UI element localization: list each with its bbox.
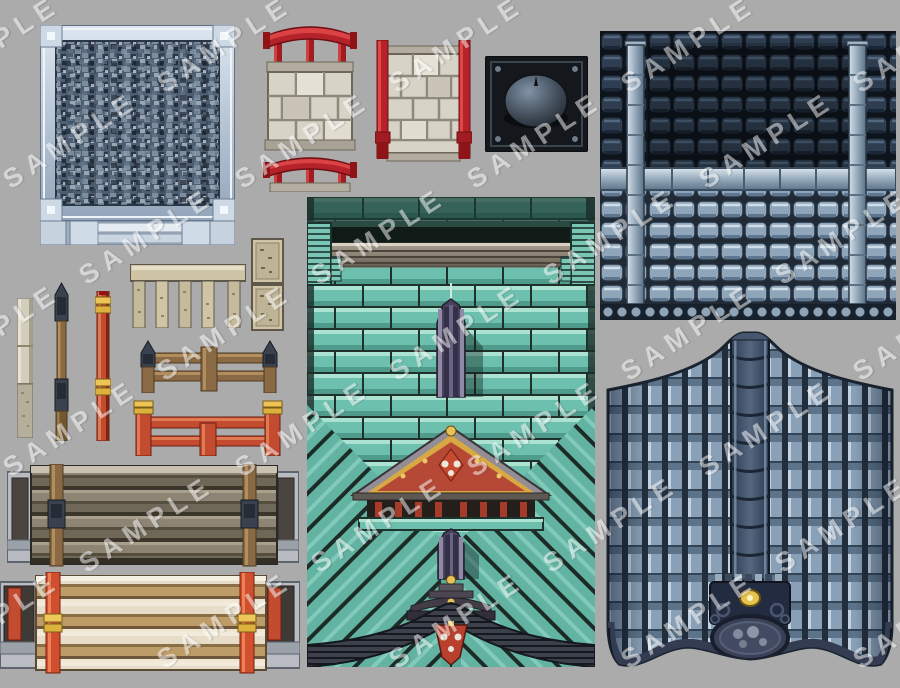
watermark-text: SAMPLE [74, 0, 220, 3]
teal-brick-tower [307, 197, 595, 667]
fence-post-left [141, 341, 155, 393]
curved-roof-slope [605, 330, 895, 680]
red-rail-bottom [263, 158, 357, 192]
bridge-dark-graphic [7, 464, 299, 568]
watermark-text: SAMPLE [538, 0, 684, 3]
bridge-dark [7, 464, 299, 568]
watermark-text: SAMPLE [306, 0, 452, 3]
red-bridge-post-right [238, 572, 256, 673]
abutment-left [7, 472, 33, 562]
watermark-text: SAMPLE [770, 0, 900, 3]
red-fence-post-left [134, 401, 153, 456]
gravel-wall-panel-graphic [40, 25, 235, 245]
stone-post-graphic [17, 298, 33, 438]
abutment-right [262, 582, 300, 668]
red-pole-right [457, 40, 472, 159]
red-fence [133, 399, 283, 456]
bridge-post-left [48, 464, 65, 566]
bridge-light-graphic [0, 572, 300, 674]
stone-pillar-graphic [251, 238, 284, 331]
wood-post [53, 281, 70, 441]
red-rail-top [263, 27, 357, 66]
red-fence-post-right [263, 401, 282, 456]
ridge-pipe-vertical-right [847, 41, 868, 304]
roof-tile-sheet [600, 31, 896, 320]
roof-tile-sheet-graphic [600, 31, 896, 320]
stone-post [17, 298, 33, 438]
bridge-light [0, 572, 300, 674]
center-ridge-column [725, 330, 775, 592]
eave-medallion [712, 616, 788, 660]
red-bridge-post-left [44, 572, 62, 673]
ridge-pipe-vertical-left [625, 41, 646, 304]
wood-post-graphic [53, 281, 70, 441]
red-fence-graphic [133, 399, 283, 456]
metal-dome-plate [485, 56, 588, 152]
torii-rail-wall [262, 14, 358, 192]
fence-post-right [263, 341, 277, 393]
curved-roof-slope-graphic [605, 330, 895, 680]
stone-pillar [251, 238, 284, 331]
metal-dome-plate-graphic [485, 56, 588, 152]
tile-end-circles [603, 307, 893, 317]
stone-balustrade [130, 264, 246, 328]
torii-rail-wall-graphic [262, 14, 358, 192]
pole-wall [375, 40, 472, 167]
tileset-sample-sheet: SAMPLESAMPLESAMPLESAMPLESAMPLESAMPLESAMP… [0, 0, 900, 688]
pole-wall-graphic [375, 40, 472, 167]
teal-brick-tower-graphic [307, 197, 595, 667]
red-post [95, 291, 111, 441]
red-post-graphic [95, 291, 111, 441]
bridge-post-right [241, 464, 258, 566]
stone-wall [265, 62, 355, 150]
gravel-wall-panel [40, 25, 235, 245]
stone-balustrade-graphic [130, 264, 246, 328]
wood-fence [139, 339, 279, 393]
abutment-left [0, 582, 40, 668]
wood-fence-graphic [139, 339, 279, 393]
red-pole-left [375, 40, 390, 159]
